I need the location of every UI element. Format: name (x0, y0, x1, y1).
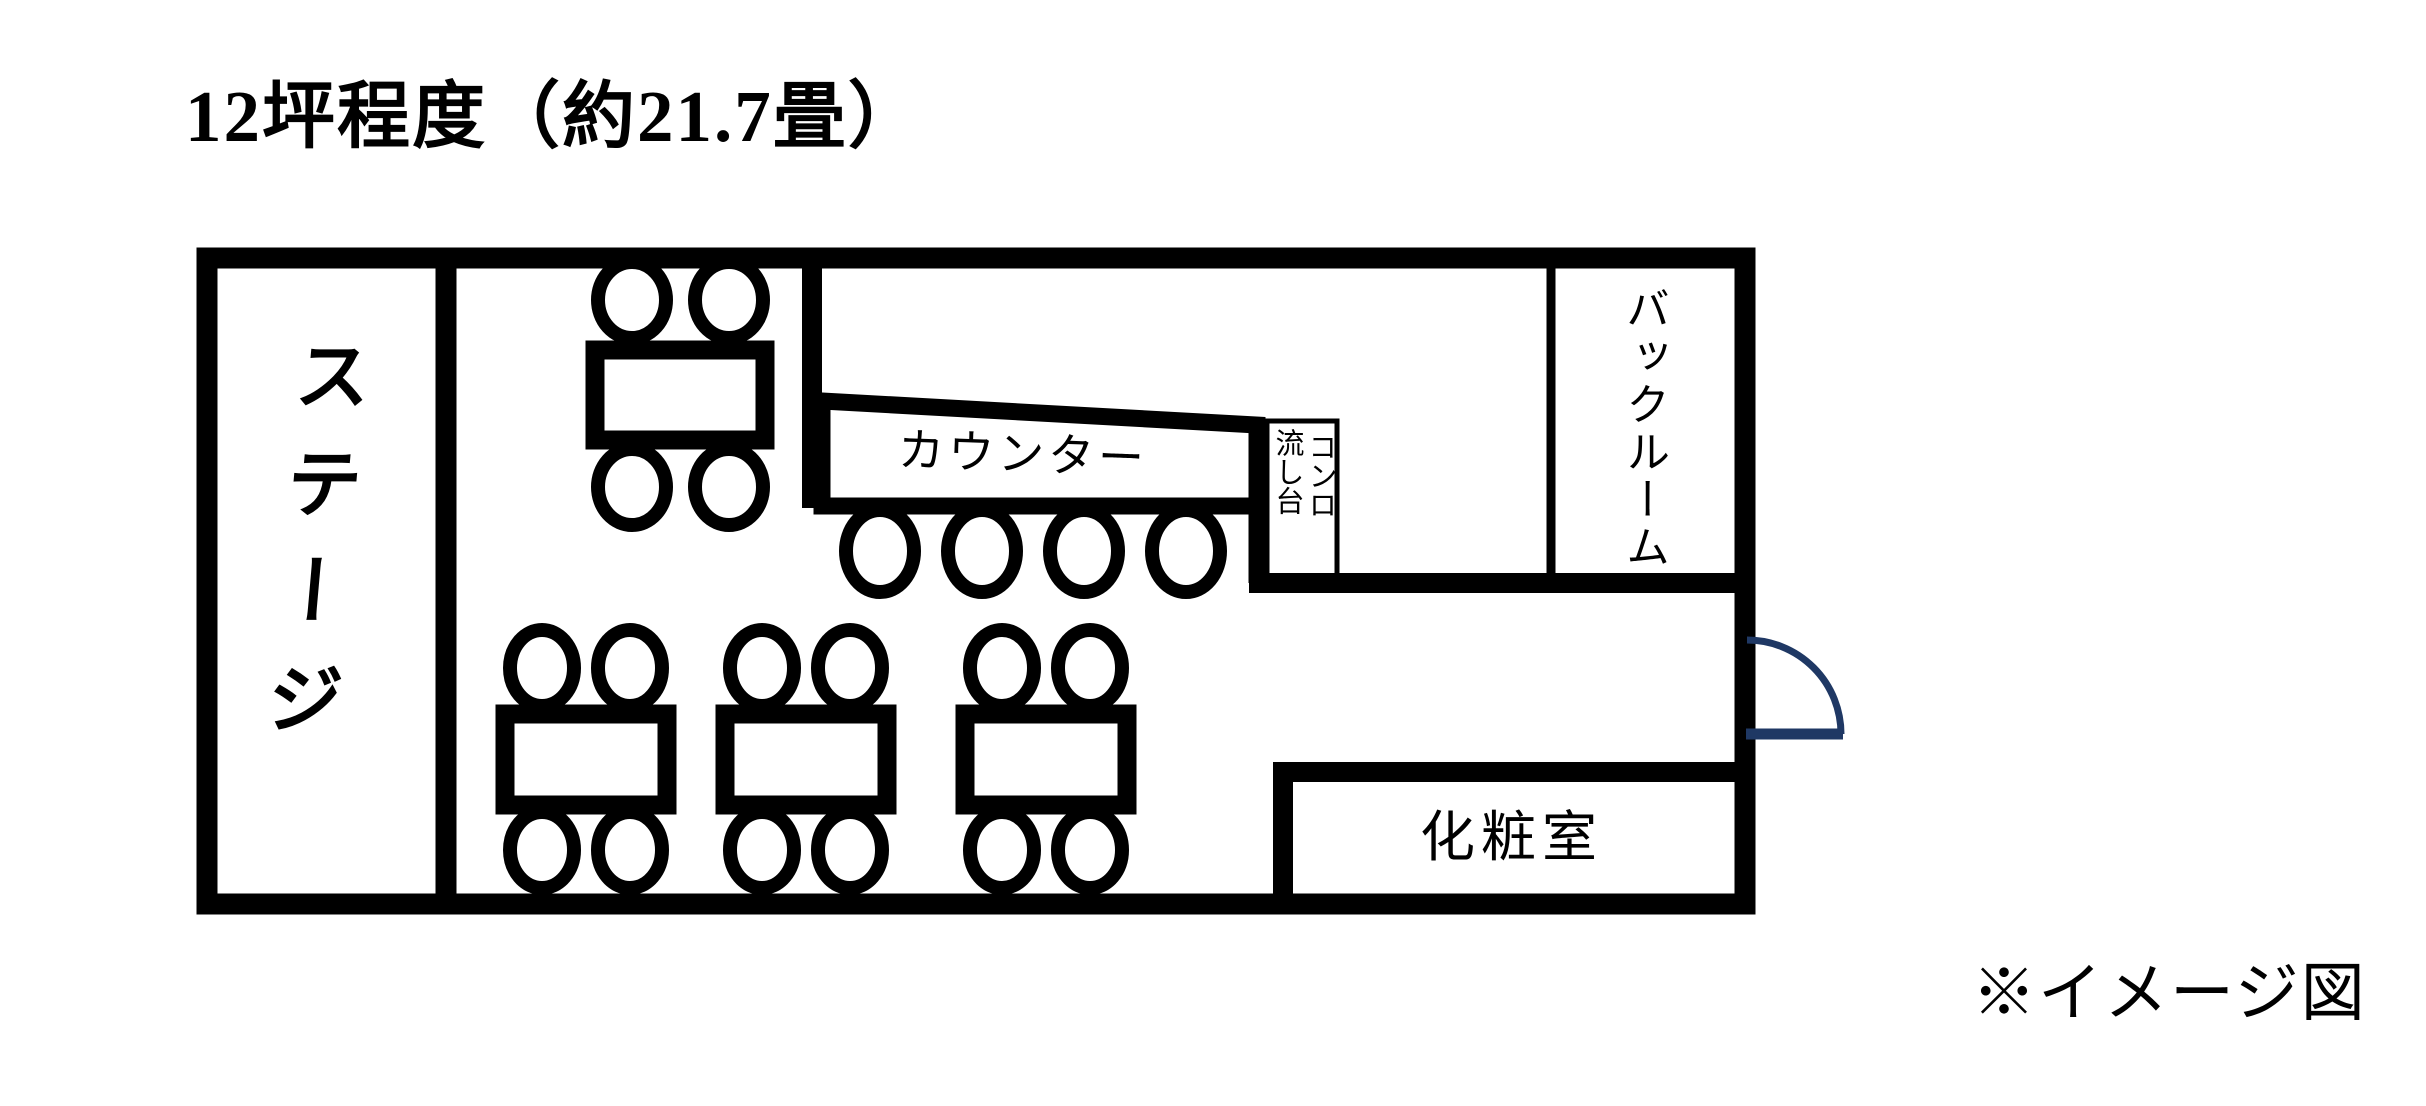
backroom-label: バックルーム (1621, 286, 1665, 571)
sink-label: 流し台 (1272, 428, 1301, 515)
floor-plan-page: 12坪程度（約21.7畳） ステージ カウンター コンロ 流し台 バックルーム … (0, 0, 2426, 1106)
chair-seat (970, 630, 1034, 706)
image-note: ※イメージ図 (1972, 962, 2367, 1026)
dining-table (505, 714, 667, 805)
chair-seat (510, 812, 574, 888)
chair-seat (598, 630, 662, 706)
dining-table-group-top (595, 262, 765, 525)
dining-table-group-2 (725, 630, 887, 888)
dining-table-group-1 (505, 630, 667, 888)
chair-seat (598, 449, 666, 525)
counter-seat (1050, 510, 1118, 592)
dining-table (725, 714, 887, 805)
chair-seat (695, 449, 763, 525)
entrance-door-arc (1747, 640, 1841, 734)
chair-seat (510, 630, 574, 706)
restroom-label: 化粧室 (1420, 810, 1603, 865)
chair-seat (1058, 812, 1122, 888)
stove-label: コンロ (1305, 432, 1334, 519)
chair-seat (730, 630, 794, 706)
counter-seat (846, 510, 914, 592)
counter-seats (846, 510, 1220, 592)
chair-seat (818, 630, 882, 706)
page-title: 12坪程度（約21.7畳） (185, 80, 923, 153)
counter-seat (948, 510, 1016, 592)
counter-label: カウンター (897, 428, 1148, 483)
chair-seat (598, 812, 662, 888)
chair-seat (695, 262, 763, 338)
counter-seat (1152, 510, 1220, 592)
chair-seat (598, 262, 666, 338)
chair-seat (818, 812, 882, 888)
chair-seat (970, 812, 1034, 888)
dining-table (965, 714, 1127, 805)
dining-table (595, 350, 765, 440)
dining-table-group-3 (965, 630, 1127, 888)
chair-seat (1058, 630, 1122, 706)
floor-plan-drawing (0, 0, 2426, 1106)
chair-seat (730, 812, 794, 888)
